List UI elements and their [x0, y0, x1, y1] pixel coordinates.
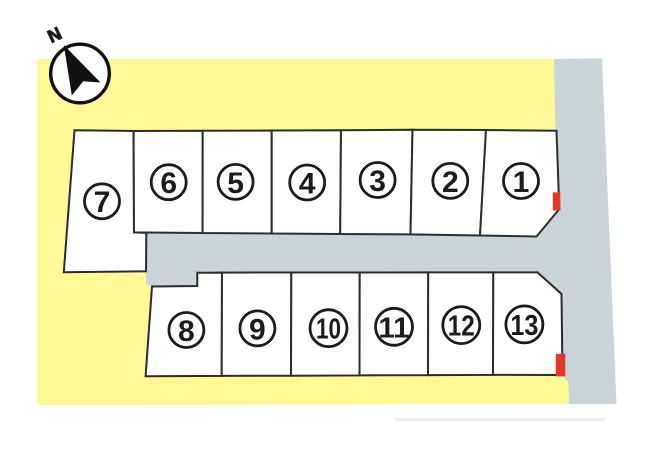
svg-text:1: 1: [513, 166, 530, 199]
svg-text:5: 5: [227, 167, 244, 200]
svg-text:10: 10: [316, 314, 341, 346]
svg-text:4: 4: [299, 167, 316, 200]
svg-text:8: 8: [178, 315, 195, 348]
svg-text:2: 2: [442, 166, 459, 199]
svg-text:11: 11: [379, 312, 410, 344]
svg-text:7: 7: [94, 186, 111, 219]
svg-text:9: 9: [249, 313, 266, 346]
svg-text:3: 3: [369, 165, 386, 198]
svg-text:6: 6: [160, 167, 177, 200]
svg-text:13: 13: [510, 310, 538, 342]
svg-text:N: N: [44, 23, 64, 47]
svg-text:12: 12: [448, 311, 475, 343]
